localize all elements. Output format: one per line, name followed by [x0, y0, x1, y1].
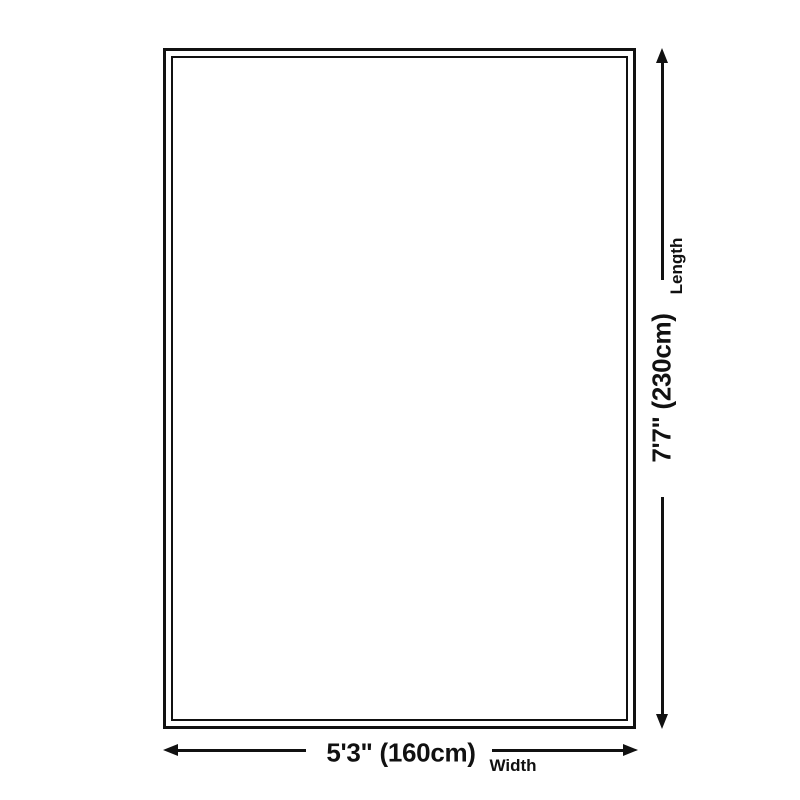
length-arrow-line-bottom [661, 497, 664, 717]
rug-outline-outer [163, 48, 636, 729]
rug-size-diagram: Length 7'7" (230cm) 5'3" (160cm) Width [0, 0, 800, 800]
length-label: Length [667, 238, 687, 295]
arrow-right-icon [623, 744, 638, 756]
length-value: 7'7" (230cm) [647, 313, 678, 462]
width-arrow-line-right [492, 749, 624, 752]
rug-outline-inner [171, 56, 628, 721]
length-arrow-line-top [661, 60, 664, 280]
width-label: Width [489, 756, 536, 776]
width-value: 5'3" (160cm) [326, 738, 475, 769]
arrow-down-icon [656, 714, 668, 729]
width-arrow-line-left [176, 749, 306, 752]
